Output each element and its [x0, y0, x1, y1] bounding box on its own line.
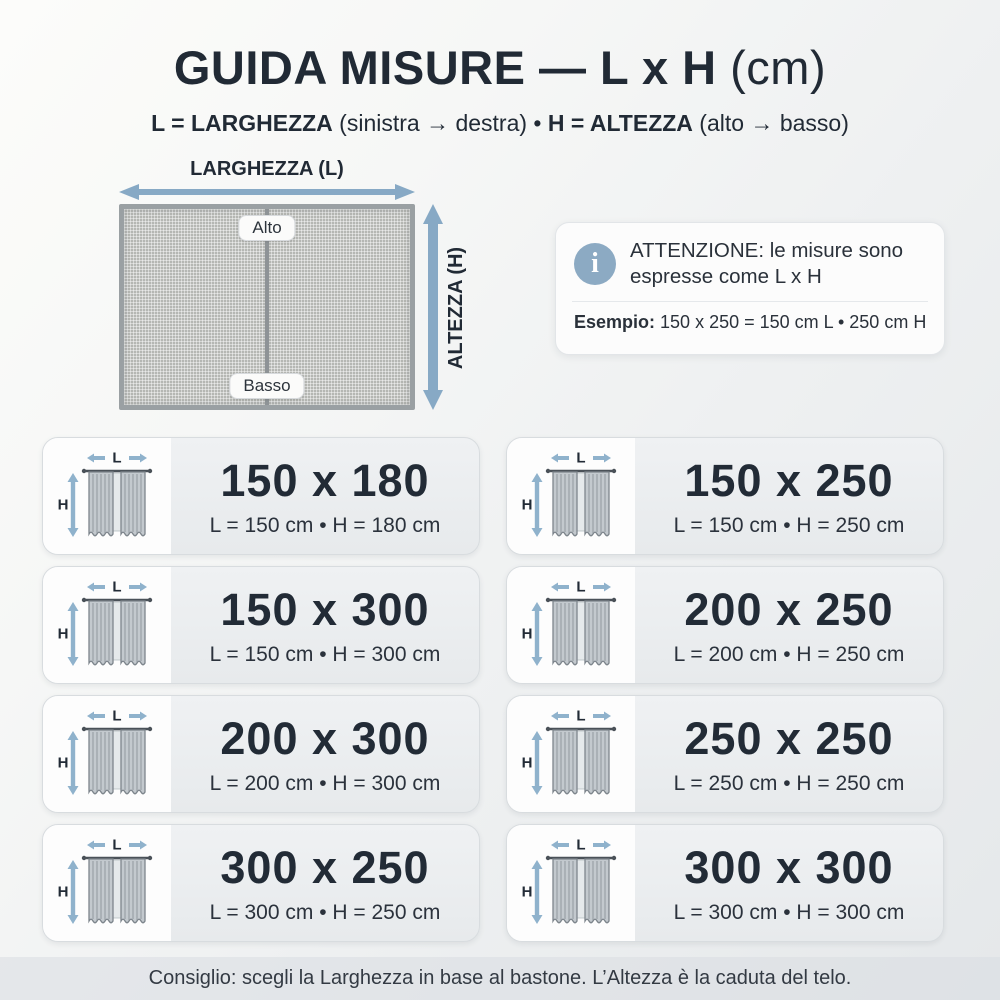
footer-band: Consiglio: scegli la Larghezza in base a…: [0, 957, 1000, 1000]
curtain-size-icon: L H: [507, 825, 635, 941]
info-message: ATTENZIONE: le misure sono espresse come…: [630, 238, 926, 290]
page-subtitle: L = LARGHEZZA (sinistra → destra) • H = …: [0, 110, 1000, 137]
fabric-swatch: Alto Basso: [119, 204, 415, 410]
measure-diagram: LARGHEZZA (L) Alto Basso ALTEZZA (H): [85, 158, 485, 418]
size-card-300x300: L H 300 x 300 L = 300 cm • H = 300 cm: [506, 824, 944, 942]
icon-l-label: L: [576, 708, 585, 725]
size-detail: L = 200 cm • H = 250 cm: [674, 643, 905, 667]
size-detail: L = 150 cm • H = 180 cm: [210, 514, 441, 538]
size-value: 150 x 180: [220, 455, 429, 507]
info-example-value: 150 x 250 = 150 cm L • 250 cm H: [655, 312, 926, 332]
size-detail: L = 300 cm • H = 250 cm: [210, 901, 441, 925]
icon-h-label: H: [58, 626, 69, 643]
size-detail: L = 250 cm • H = 250 cm: [674, 772, 905, 796]
size-card-200x300: L H 200 x 300 L = 200 cm • H = 300 cm: [42, 695, 480, 813]
curtain-size-icon: L H: [507, 696, 635, 812]
size-card-250x250: L H 250 x 250 L = 250 cm • H = 250 cm: [506, 695, 944, 813]
size-value: 150 x 250: [684, 455, 893, 507]
subtitle-l-range: (sinistra → destra) •: [333, 110, 548, 136]
curtain-size-icon: L H: [43, 438, 171, 554]
icon-h-label: H: [522, 497, 533, 514]
curtain-size-icon: L H: [43, 567, 171, 683]
basso-badge: Basso: [229, 373, 304, 399]
size-card-text: 300 x 250 L = 300 cm • H = 250 cm: [171, 825, 479, 941]
size-card-150x180: L H 150 x 180 L = 150 cm • H = 180 cm: [42, 437, 480, 555]
icon-l-label: L: [112, 579, 121, 596]
size-detail: L = 300 cm • H = 300 cm: [674, 901, 905, 925]
footer-tip: Consiglio: scegli la Larghezza in base a…: [149, 967, 852, 990]
size-card-text: 150 x 300 L = 150 cm • H = 300 cm: [171, 567, 479, 683]
size-detail: L = 200 cm • H = 300 cm: [210, 772, 441, 796]
size-value: 300 x 300: [684, 842, 893, 894]
alto-badge: Alto: [238, 215, 295, 241]
width-label: LARGHEZZA (L): [119, 158, 415, 181]
width-arrow-icon: [119, 183, 415, 201]
size-card-text: 150 x 250 L = 150 cm • H = 250 cm: [635, 438, 943, 554]
curtain-icon: [57, 578, 157, 674]
icon-l-label: L: [112, 450, 121, 467]
size-cards-grid: L H 150 x 180 L = 150 cm • H = 180 cm L …: [42, 437, 944, 942]
curtain-icon: [57, 449, 157, 545]
size-value: 150 x 300: [220, 584, 429, 636]
height-label: ALTEZZA (H): [445, 203, 471, 413]
page-title-unit: (cm): [730, 41, 826, 94]
info-divider: [572, 301, 928, 302]
icon-l-label: L: [576, 837, 585, 854]
size-card-150x300: L H 150 x 300 L = 150 cm • H = 300 cm: [42, 566, 480, 684]
icon-l-label: L: [112, 708, 121, 725]
info-box-top: i ATTENZIONE: le misure sono espresse co…: [574, 238, 926, 290]
icon-h-label: H: [522, 755, 533, 772]
info-box: i ATTENZIONE: le misure sono espresse co…: [555, 222, 945, 355]
subtitle-l-term: L = LARGHEZZA: [151, 110, 333, 136]
info-icon: i: [574, 243, 616, 285]
curtain-icon: [57, 836, 157, 932]
info-example: Esempio: 150 x 250 = 150 cm L • 250 cm H: [574, 312, 926, 333]
size-card-text: 150 x 180 L = 150 cm • H = 180 cm: [171, 438, 479, 554]
subtitle-h-term: H = ALTEZZA: [548, 110, 693, 136]
icon-l-label: L: [576, 579, 585, 596]
page-title: GUIDA MISURE — L x H (cm): [0, 40, 1000, 95]
curtain-size-icon: L H: [507, 438, 635, 554]
size-card-text: 250 x 250 L = 250 cm • H = 250 cm: [635, 696, 943, 812]
size-value: 250 x 250: [684, 713, 893, 765]
height-arrow-icon: [421, 204, 445, 410]
curtain-icon: [521, 707, 621, 803]
size-card-300x250: L H 300 x 250 L = 300 cm • H = 250 cm: [42, 824, 480, 942]
size-card-text: 200 x 300 L = 200 cm • H = 300 cm: [171, 696, 479, 812]
curtain-icon: [521, 836, 621, 932]
size-value: 200 x 300: [220, 713, 429, 765]
icon-h-label: H: [58, 497, 69, 514]
size-card-150x250: L H 150 x 250 L = 150 cm • H = 250 cm: [506, 437, 944, 555]
icon-h-label: H: [522, 626, 533, 643]
size-value: 200 x 250: [684, 584, 893, 636]
icon-h-label: H: [522, 884, 533, 901]
curtain-size-icon: L H: [43, 696, 171, 812]
size-card-text: 200 x 250 L = 200 cm • H = 250 cm: [635, 567, 943, 683]
size-card-text: 300 x 300 L = 300 cm • H = 300 cm: [635, 825, 943, 941]
info-example-label: Esempio:: [574, 312, 655, 332]
curtain-size-icon: L H: [507, 567, 635, 683]
curtain-icon: [57, 707, 157, 803]
curtain-size-icon: L H: [43, 825, 171, 941]
curtain-icon: [521, 449, 621, 545]
size-detail: L = 150 cm • H = 250 cm: [674, 514, 905, 538]
icon-l-label: L: [576, 450, 585, 467]
icon-l-label: L: [112, 837, 121, 854]
icon-h-label: H: [58, 884, 69, 901]
icon-h-label: H: [58, 755, 69, 772]
size-value: 300 x 250: [220, 842, 429, 894]
curtain-icon: [521, 578, 621, 674]
size-detail: L = 150 cm • H = 300 cm: [210, 643, 441, 667]
subtitle-h-range: (alto → basso): [693, 110, 849, 136]
size-card-200x250: L H 200 x 250 L = 200 cm • H = 250 cm: [506, 566, 944, 684]
